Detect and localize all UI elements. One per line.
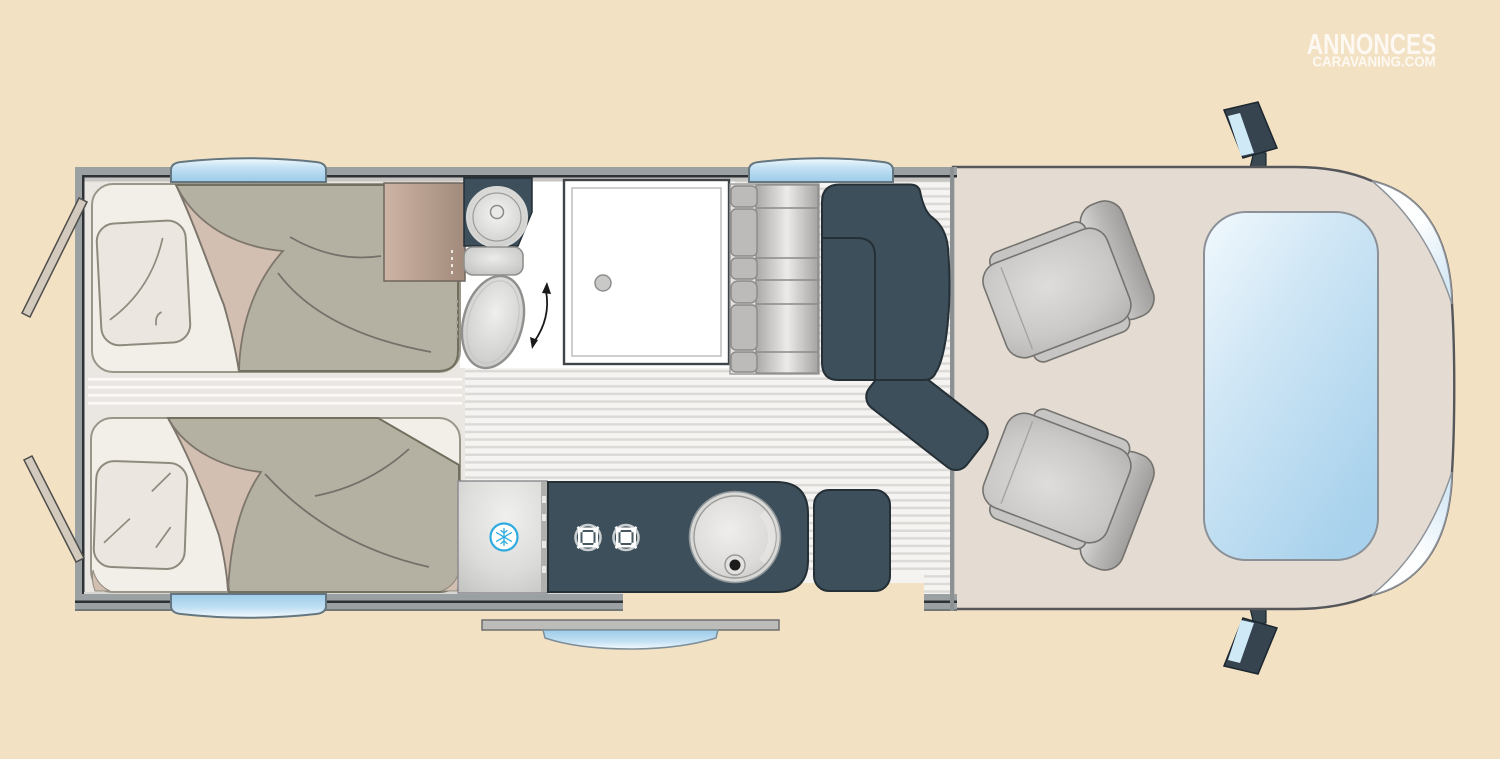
svg-text:CARAVANING.COM: CARAVANING.COM — [1312, 54, 1435, 71]
